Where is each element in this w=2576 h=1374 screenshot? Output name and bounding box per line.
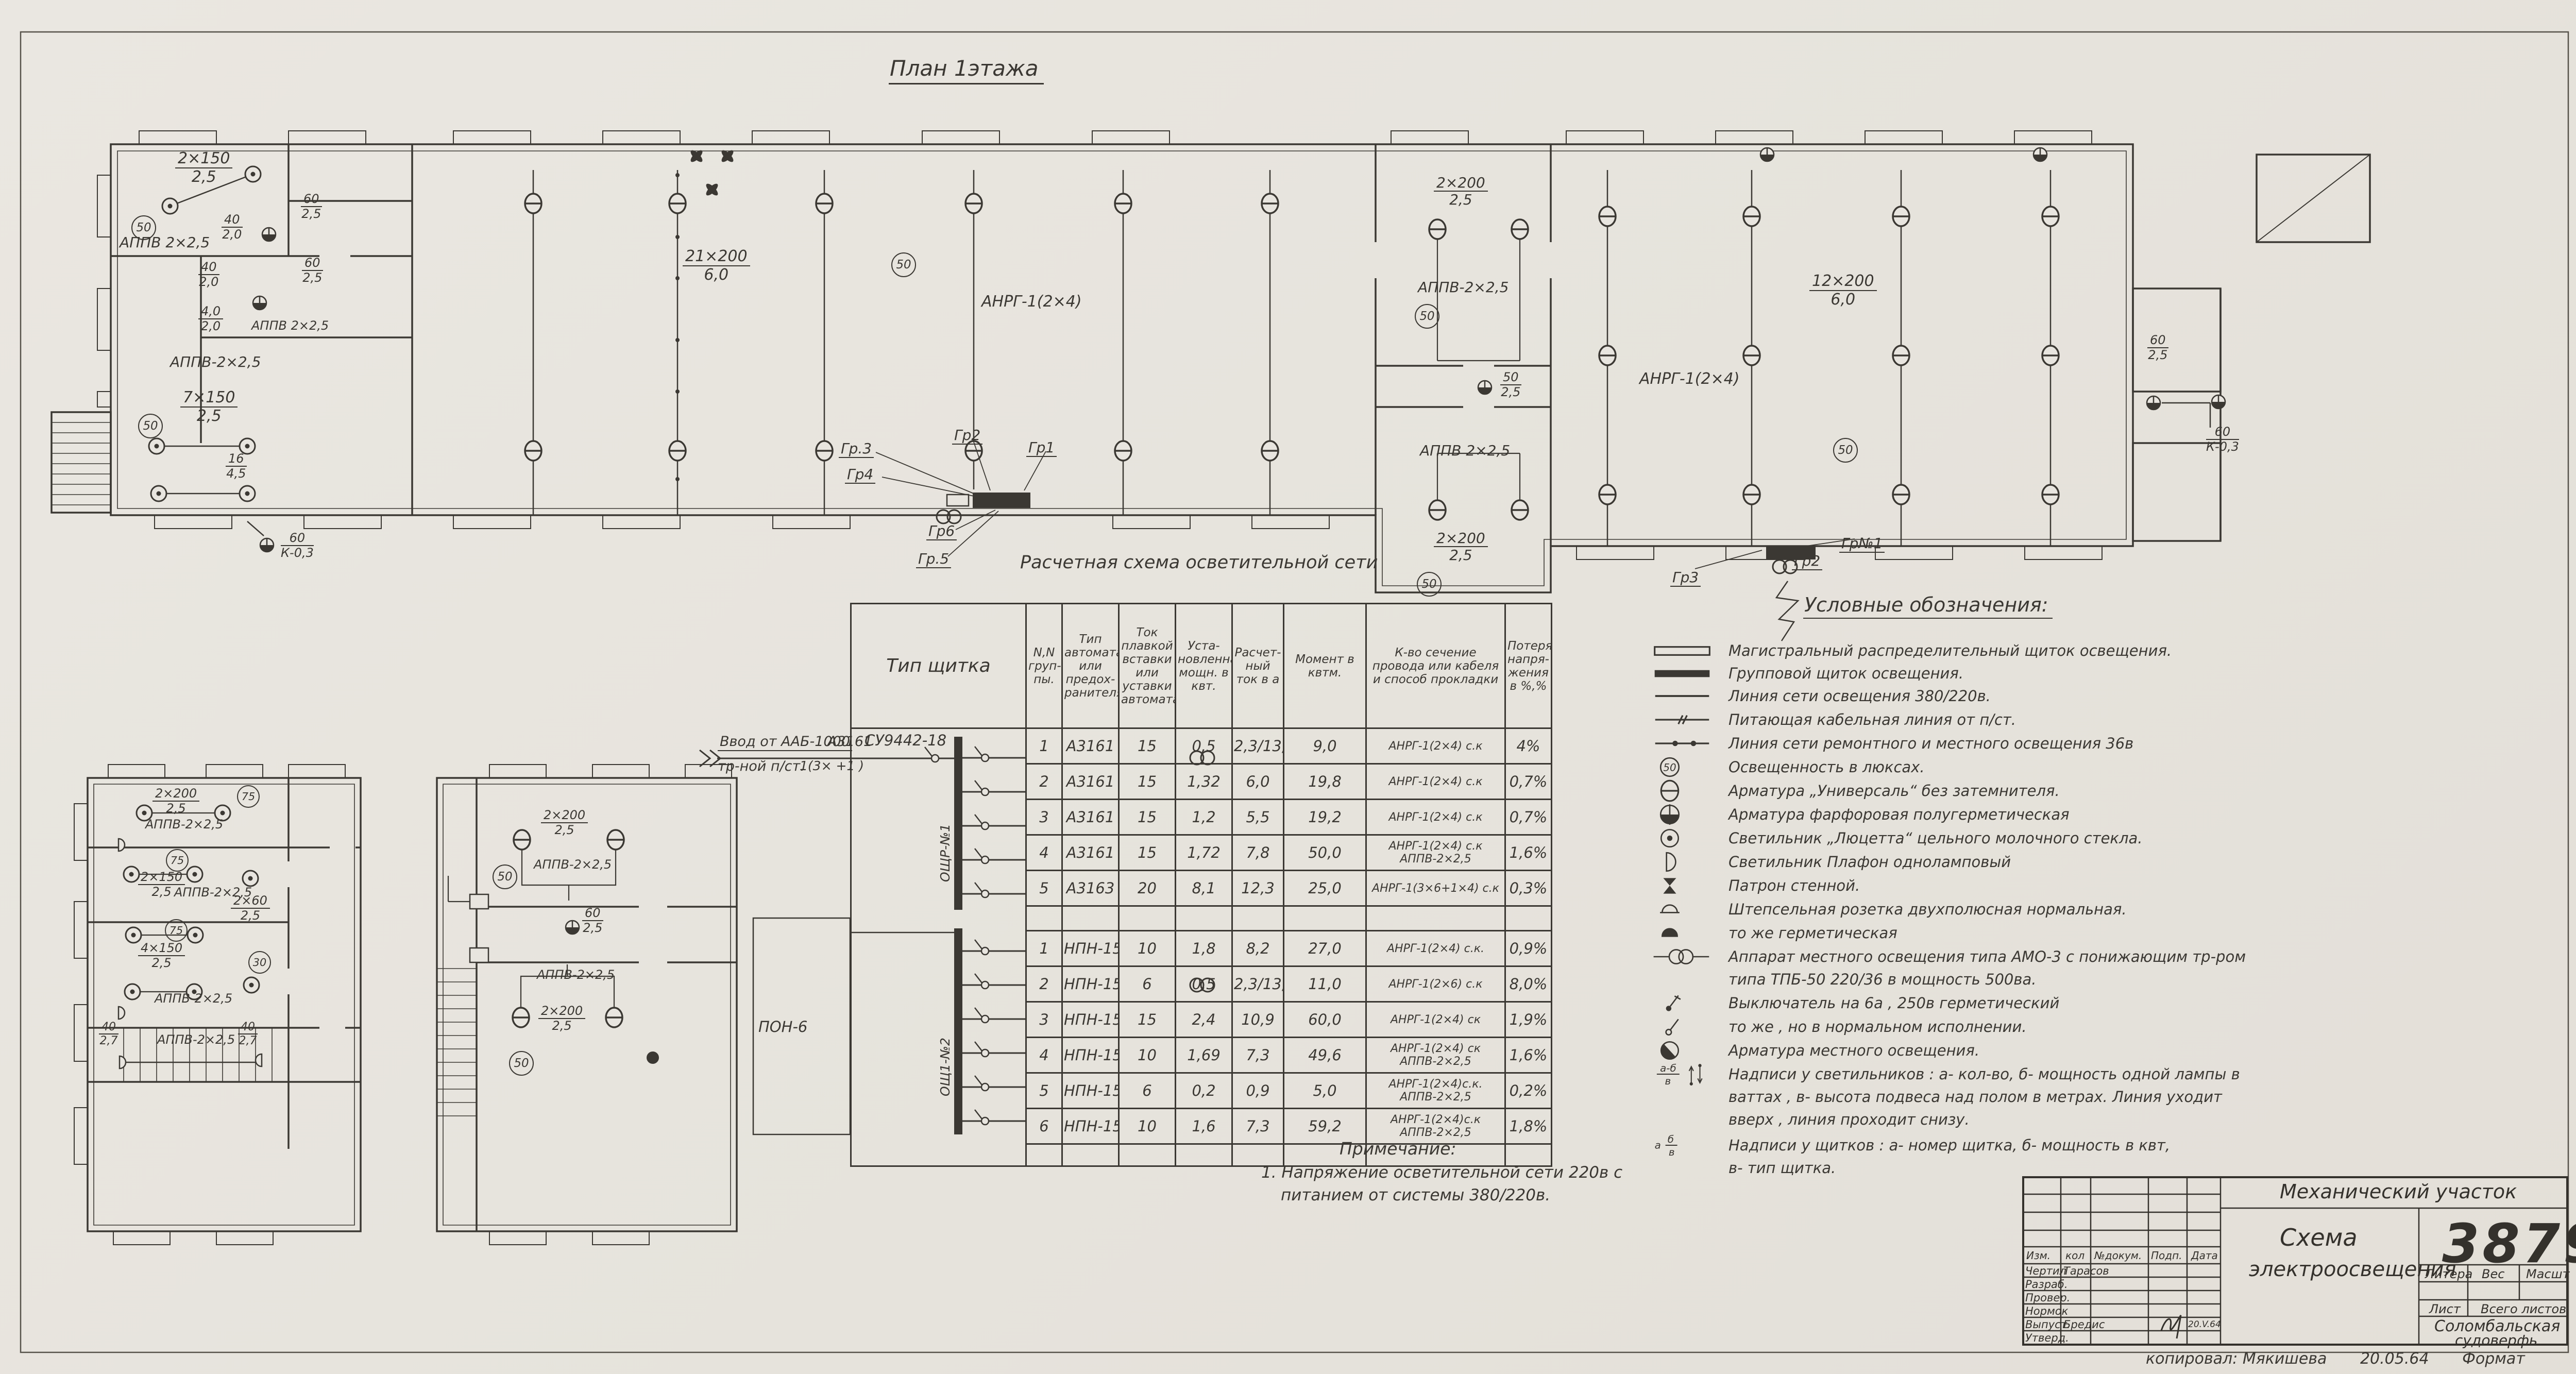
plan-label: 4×1502,5: [138, 942, 185, 970]
table-cell: 5: [1026, 871, 1062, 906]
litera-label: Литера: [2425, 1267, 2472, 1281]
plan-label: тр-ной п/ст.: [718, 759, 805, 774]
table-cell: 0,7%: [1505, 764, 1552, 800]
legend-text: Магистральный распределительный щиток ос…: [1728, 642, 2172, 659]
table-cell: 7,8: [1232, 835, 1284, 871]
table-cell: 1: [1026, 728, 1062, 764]
lux-level-circle: 50: [891, 252, 916, 277]
plan-label: ОЩ1-№2: [939, 1038, 952, 1096]
doc-title-1: Схема: [2280, 1224, 2358, 1251]
table-cell: 25,0: [1284, 871, 1366, 906]
table-cell: 1,69: [1176, 1038, 1232, 1073]
legend-text: Аппарат местного освещения типа АМО-3 с …: [1728, 948, 2246, 965]
plan-label: 2×2002,5: [1434, 175, 1488, 208]
table-header: К-во сечение провода или кабеля и способ…: [1366, 604, 1505, 728]
plan-label: 502,5: [1500, 371, 1521, 399]
plan-label: АППВ-2×2,5: [537, 969, 615, 981]
plan-label: 602,5: [302, 257, 323, 284]
plan-label: АППВ-2×2,5: [1418, 280, 1509, 295]
table-cell: А3161: [1062, 728, 1119, 764]
legend-text: Патрон стенной.: [1728, 877, 1860, 894]
legend-text: Арматура фарфоровая полугерметическая: [1728, 806, 2070, 823]
table-cell: 1,2: [1176, 800, 1232, 835]
calculation-table: Тип щиткаN,N груп- пы.Тип автомата или п…: [850, 603, 1552, 1167]
table-cell: 1,72: [1176, 835, 1232, 871]
col-dokum: №докум.: [2094, 1249, 2142, 1262]
plan-label: 1(3× +1 ): [800, 759, 864, 773]
outlet-sealed-icon: [1651, 921, 1713, 945]
table-header: Тип щитка: [851, 604, 1026, 728]
table-cell: 6: [1119, 966, 1176, 1002]
table-cell: 5: [1026, 1073, 1062, 1109]
table-cell: А3161: [1062, 764, 1119, 800]
list-label: Лист: [2429, 1302, 2461, 1316]
table-cell: 0,3%: [1505, 871, 1552, 906]
plan-label: ОЩР-№1: [939, 824, 952, 882]
company-line-2: судоверфь: [2455, 1332, 2537, 1349]
legend-text: Линия сети освещения 380/220в.: [1728, 687, 1991, 705]
legend-text: Арматура местного освещения.: [1728, 1042, 1979, 1059]
table-cell: 15: [1119, 1002, 1176, 1038]
transformer-icon: [1651, 945, 1713, 969]
plan-label: АНРГ-1(2×4): [1639, 371, 1740, 387]
legend-text: вверх , линия проходит снизу.: [1728, 1111, 1970, 1128]
table-cell: 0,5: [1176, 728, 1232, 764]
row-role-1: Разраб.: [2025, 1278, 2068, 1291]
line-plain-icon: [1651, 684, 1713, 708]
line-feeder-icon: [1651, 708, 1713, 732]
outlet-normal-icon: [1651, 897, 1713, 921]
legend-text: Арматура „Универсаль“ без затемнителя.: [1728, 782, 2060, 800]
ves-label: Вес: [2482, 1267, 2504, 1281]
plan-label: Гр3: [1670, 570, 1701, 587]
col-izm: Изм.: [2026, 1249, 2050, 1262]
doc-number: 3879: [2442, 1212, 2576, 1275]
plan-label: Гр6: [926, 523, 957, 540]
table-cell: 19,2: [1284, 800, 1366, 835]
plan-label: 4,02,0: [198, 305, 223, 333]
table-cell: 2,3/13,9: [1232, 966, 1284, 1002]
note-line-2: питанием от системы 380/220в.: [1281, 1186, 1550, 1205]
table-cell: 7,3: [1232, 1038, 1284, 1073]
legend-text: Штепсельная розетка двухполюсная нормаль…: [1728, 901, 2127, 918]
table-cell: НПН-15: [1062, 1038, 1119, 1073]
table-cell: 0,2: [1176, 1073, 1232, 1109]
table-header: Ток плавкой вставки или уставки автомата: [1119, 604, 1176, 728]
table-cell: НПН-15: [1062, 1109, 1119, 1144]
plan-label: 602,5: [301, 193, 322, 220]
table-header: Потеря напря- жения в %,%: [1505, 604, 1552, 728]
table-cell: 1,9%: [1505, 1002, 1552, 1038]
format-label: Формат: [2462, 1350, 2525, 1368]
org-name: Механический участок: [2280, 1180, 2517, 1203]
lux-level-circle: 30: [248, 951, 271, 974]
plan-label: 2×2002,5: [541, 809, 588, 837]
table-cell: 2,3/13,9: [1232, 728, 1284, 764]
plan-label: Гр2: [952, 428, 982, 445]
bar-filled-icon: [1651, 661, 1713, 685]
socket-wall-icon: [1651, 874, 1713, 897]
legend-text: Надписи у щитков : а- номер щитка, б- мо…: [1728, 1136, 2170, 1154]
table-cell: 1,6%: [1505, 1038, 1552, 1073]
lux-level-circle: 75: [165, 919, 188, 942]
table-cell: 4%: [1505, 728, 1552, 764]
plan-label: 402,0: [222, 213, 243, 241]
window-marks: [97, 131, 2102, 559]
copied-footer: копировал: Мякишева 20.05.64 Формат: [2146, 1350, 2553, 1368]
svg-text:в: в: [1669, 1146, 1675, 1157]
col-podp: Подп.: [2151, 1249, 2182, 1262]
vsego-label: Всего листов: [2481, 1302, 2566, 1316]
table-cell: 1,6: [1176, 1109, 1232, 1144]
row-role-3: Нормок: [2025, 1305, 2068, 1317]
title-block: Механический участок 3879 Схема электроо…: [2022, 1176, 2568, 1346]
row-role-0: Чертил: [2025, 1265, 2066, 1277]
table-caption: Расчетная схема осветительной сети: [1020, 552, 1378, 573]
table-cell: АНРГ-1(2×4) с.к: [1366, 728, 1505, 764]
legend-text: Групповой щиток освещения.: [1728, 665, 1963, 682]
table-cell: АНРГ-1(2×4)с.к АППВ-2×2,5: [1366, 1109, 1505, 1144]
table-cell: 8,0%: [1505, 966, 1552, 1002]
table-cell: 3: [1026, 800, 1062, 835]
table-cell: АНРГ-1(2×4) ск: [1366, 1002, 1505, 1038]
table-cell: АНРГ-1(2×6) с.к: [1366, 966, 1505, 1002]
plan-label: 402,7: [99, 1021, 118, 1047]
plan-label: 60К-0,3: [2206, 426, 2239, 453]
table-cell: 0,5: [1176, 966, 1232, 1002]
table-cell: 27,0: [1284, 931, 1366, 966]
copied-date: 20.05.64: [2360, 1350, 2429, 1368]
drawing-sheet: План 1этажа Расчетная схема осветительно…: [0, 0, 2576, 1374]
table-cell: 6: [1119, 1073, 1176, 1109]
table-cell: 12,3: [1232, 871, 1284, 906]
masshtab-label: Масшт: [2526, 1267, 2570, 1281]
table-cell: 10: [1119, 1038, 1176, 1073]
plan-label: 602,5: [2147, 334, 2168, 362]
row-date-4: 20.V.64: [2188, 1319, 2221, 1330]
plan-label: АППВ 2×2,5: [1420, 443, 1510, 458]
plan-label: АППВ-2×2,5: [170, 354, 261, 369]
table-cell: 6: [1026, 1109, 1062, 1144]
table-header: Расчет- ный ток в а: [1232, 604, 1284, 728]
plan-label: 602,5: [582, 907, 603, 935]
plan-label: 12×2006,0: [1809, 273, 1877, 308]
legend-text: Светильник „Люцетта“ цельного молочного …: [1728, 829, 2142, 847]
table-cell: 2: [1026, 764, 1062, 800]
switch-normal-icon: [1651, 1015, 1713, 1039]
table-cell: 0,9%: [1505, 931, 1552, 966]
lux-level-circle: 50: [131, 215, 156, 240]
table-cell: НПН-15: [1062, 966, 1119, 1002]
svg-text:б: б: [1668, 1133, 1674, 1145]
table-cell: 3: [1026, 1002, 1062, 1038]
lamp-porcelain-icon: [1651, 803, 1713, 826]
plan-label: Гр.3: [839, 441, 874, 458]
table-cell: АНРГ-1(2×4) с.к АППВ-2×2,5: [1366, 835, 1505, 871]
table-cell: 5,0: [1284, 1073, 1366, 1109]
table-cell: АНРГ-1(3×6+1×4) с.к: [1366, 871, 1505, 906]
legend-text: Питающая кабельная линия от п/ст.: [1728, 711, 2016, 728]
col-kol: кол: [2065, 1249, 2084, 1262]
table-header: Уста- новленная мощн. в квт.: [1176, 604, 1232, 728]
table-cell: 15: [1119, 800, 1176, 835]
table-cell: 11,0: [1284, 966, 1366, 1002]
lamp-lucetta-icon: [1651, 826, 1713, 850]
table-cell: АНРГ-1(2×4) с.к.: [1366, 931, 1505, 966]
row-name-4: Бредис: [2063, 1318, 2105, 1331]
table-cell: 7,3: [1232, 1109, 1284, 1144]
plan-label: АППВ-2×2,5: [157, 1033, 235, 1046]
plan-label: АППВ 2×2,5: [251, 319, 329, 332]
plan-label: Гр4: [845, 467, 875, 484]
table-cell: 10,9: [1232, 1002, 1284, 1038]
table-cell: 6,0: [1232, 764, 1284, 800]
lux-level-circle: 50: [138, 414, 163, 438]
table-cell: 1,6%: [1505, 835, 1552, 871]
table-cell: НПН-15: [1062, 931, 1119, 966]
plan-label: ПОН-6: [758, 1019, 807, 1034]
table-cell: А3163: [1062, 871, 1119, 906]
plan-label: 2×2002,5: [1434, 531, 1488, 563]
legend-text: Освещенность в люксах.: [1728, 758, 1925, 776]
plan-label: СУ9442-18: [865, 733, 946, 748]
table-cell: 15: [1119, 728, 1176, 764]
table-cell: 2,4: [1176, 1002, 1232, 1038]
table-cell: 1,8: [1176, 931, 1232, 966]
table-cell: 60,0: [1284, 1002, 1366, 1038]
plan-label: Гр№1: [1839, 536, 1885, 553]
table-cell: А3161: [1062, 800, 1119, 835]
plan-label: 164,5: [226, 452, 247, 480]
table-cell: 9,0: [1284, 728, 1366, 764]
legend-text: то же герметическая: [1728, 924, 1897, 942]
legend-text: в- тип щитка.: [1728, 1159, 1836, 1177]
plan-label: 21×2006,0: [683, 248, 750, 283]
plan-label: 7×1502,5: [180, 389, 238, 424]
table-cell: АНРГ-1(2×4)с.к. АППВ-2×2,5: [1366, 1073, 1505, 1109]
table-cell: 1,8%: [1505, 1109, 1552, 1144]
lamp-plafond-icon: [1651, 850, 1713, 874]
legend-text: Выключатель на 6а , 250в герметический: [1728, 994, 2059, 1012]
lux-level-circle: 75: [237, 785, 260, 808]
table-cell: 50,0: [1284, 835, 1366, 871]
table-cell: 0,2%: [1505, 1073, 1552, 1109]
legend-title: Условные обозначения:: [1803, 593, 2053, 619]
table-header: N,N груп- пы.: [1026, 604, 1062, 728]
lux-level-circle: 50: [509, 1051, 534, 1076]
plan-label: АППВ 2×2,5: [120, 235, 210, 250]
legend-text: Линия сети ремонтного и местного освещен…: [1728, 735, 2133, 752]
table-cell: 1: [1026, 931, 1062, 966]
table-cell: 8,1: [1176, 871, 1232, 906]
table-cell: НПН-15: [1062, 1073, 1119, 1109]
svg-text:а: а: [1655, 1139, 1661, 1151]
table-cell: 19,8: [1284, 764, 1366, 800]
table-cell: А3161: [1062, 835, 1119, 871]
legend-text: ваттах , в- высота подвеса над полом в м…: [1728, 1088, 2222, 1106]
plan-label: Гр.5: [916, 551, 951, 568]
table-cell: 2: [1026, 966, 1062, 1002]
row-role-5: Утверд.: [2025, 1332, 2069, 1344]
copied-by: копировал: Мякишева: [2146, 1350, 2327, 1368]
switch-sealed-icon: [1651, 991, 1713, 1015]
plan-label: 2×602,5: [231, 894, 270, 922]
table-cell: 0,7%: [1505, 800, 1552, 835]
svg-text:50: 50: [1663, 761, 1676, 773]
plan-label: АППВ-2×2,5: [145, 818, 223, 831]
table-header: Момент в квтм.: [1284, 604, 1366, 728]
plan-title: План 1этажа: [889, 56, 1044, 84]
table-cell: АНРГ-1(2×4) ск АППВ-2×2,5: [1366, 1038, 1505, 1073]
lux-level-circle: 50: [1833, 438, 1858, 463]
label-panel-icon: абв: [1651, 1133, 1713, 1157]
line-dots-icon: [1651, 732, 1713, 755]
table-cell: АНРГ-1(2×4) с.к: [1366, 800, 1505, 835]
plan-label: Гр2: [1792, 553, 1822, 570]
row-role-2: Провер.: [2025, 1292, 2070, 1304]
table-cell: 4: [1026, 1038, 1062, 1073]
table-cell: 0,9: [1232, 1073, 1284, 1109]
lux-level-circle: 75: [166, 849, 189, 872]
legend-text: Надписи у светильников : а- кол-во, б- м…: [1728, 1065, 2240, 1083]
label-lamp-icon: а-бв: [1651, 1062, 1713, 1086]
table-cell: 8,2: [1232, 931, 1284, 966]
lux-level-circle: 50: [1415, 304, 1439, 329]
plan-label: АППВ-2×2,5: [534, 858, 612, 871]
lamp-local-icon: [1651, 1039, 1713, 1062]
table-cell: 4: [1026, 835, 1062, 871]
plan-label: 402,0: [198, 261, 219, 289]
legend-text: Светильник Плафон одноламповый: [1728, 853, 2011, 871]
table-cell: 1,32: [1176, 764, 1232, 800]
table-cell: 10: [1119, 1109, 1176, 1144]
plan-label: АНРГ-1(2×4): [981, 294, 1082, 310]
plan-label: 2×2002,5: [538, 1005, 585, 1032]
svg-text:а-б: а-б: [1660, 1062, 1676, 1074]
table-cell: 15: [1119, 835, 1176, 871]
table-cell: 20: [1119, 871, 1176, 906]
lamp-universal-icon: [1651, 779, 1713, 803]
circle-lux-icon: 50: [1651, 755, 1713, 779]
plan-label: Гр1: [1026, 440, 1057, 457]
lux-level-circle: 50: [1417, 572, 1442, 597]
plan-label: АППВ-2×2,5: [155, 992, 232, 1005]
lux-level-circle: 50: [493, 864, 517, 889]
legend-text: то же , но в нормальном исполнении.: [1728, 1018, 2027, 1036]
table-cell: 15: [1119, 764, 1176, 800]
table-cell: 10: [1119, 931, 1176, 966]
table-cell: 59,2: [1284, 1109, 1366, 1144]
plan-label: 2×2002,5: [152, 787, 199, 815]
plan-label: 60К-0,3: [281, 532, 314, 559]
table-cell: 49,6: [1284, 1038, 1366, 1073]
table-cell: 5,5: [1232, 800, 1284, 835]
plan-label: 2×1502,5: [175, 150, 232, 185]
legend-text: типа ТПБ-50 220/36 в мощность 500ва.: [1728, 971, 2036, 988]
col-data: Дата: [2191, 1249, 2218, 1262]
plan-label: 402,7: [238, 1021, 258, 1047]
table-cell: НПН-15: [1062, 1002, 1119, 1038]
bar-outline-icon: [1651, 639, 1713, 663]
table-header: Тип автомата или предох- ранителя: [1062, 604, 1119, 728]
row-name-0: Тарасов: [2063, 1265, 2109, 1277]
table-cell: АНРГ-1(2×4) с.к: [1366, 764, 1505, 800]
svg-text:в: в: [1665, 1075, 1671, 1086]
